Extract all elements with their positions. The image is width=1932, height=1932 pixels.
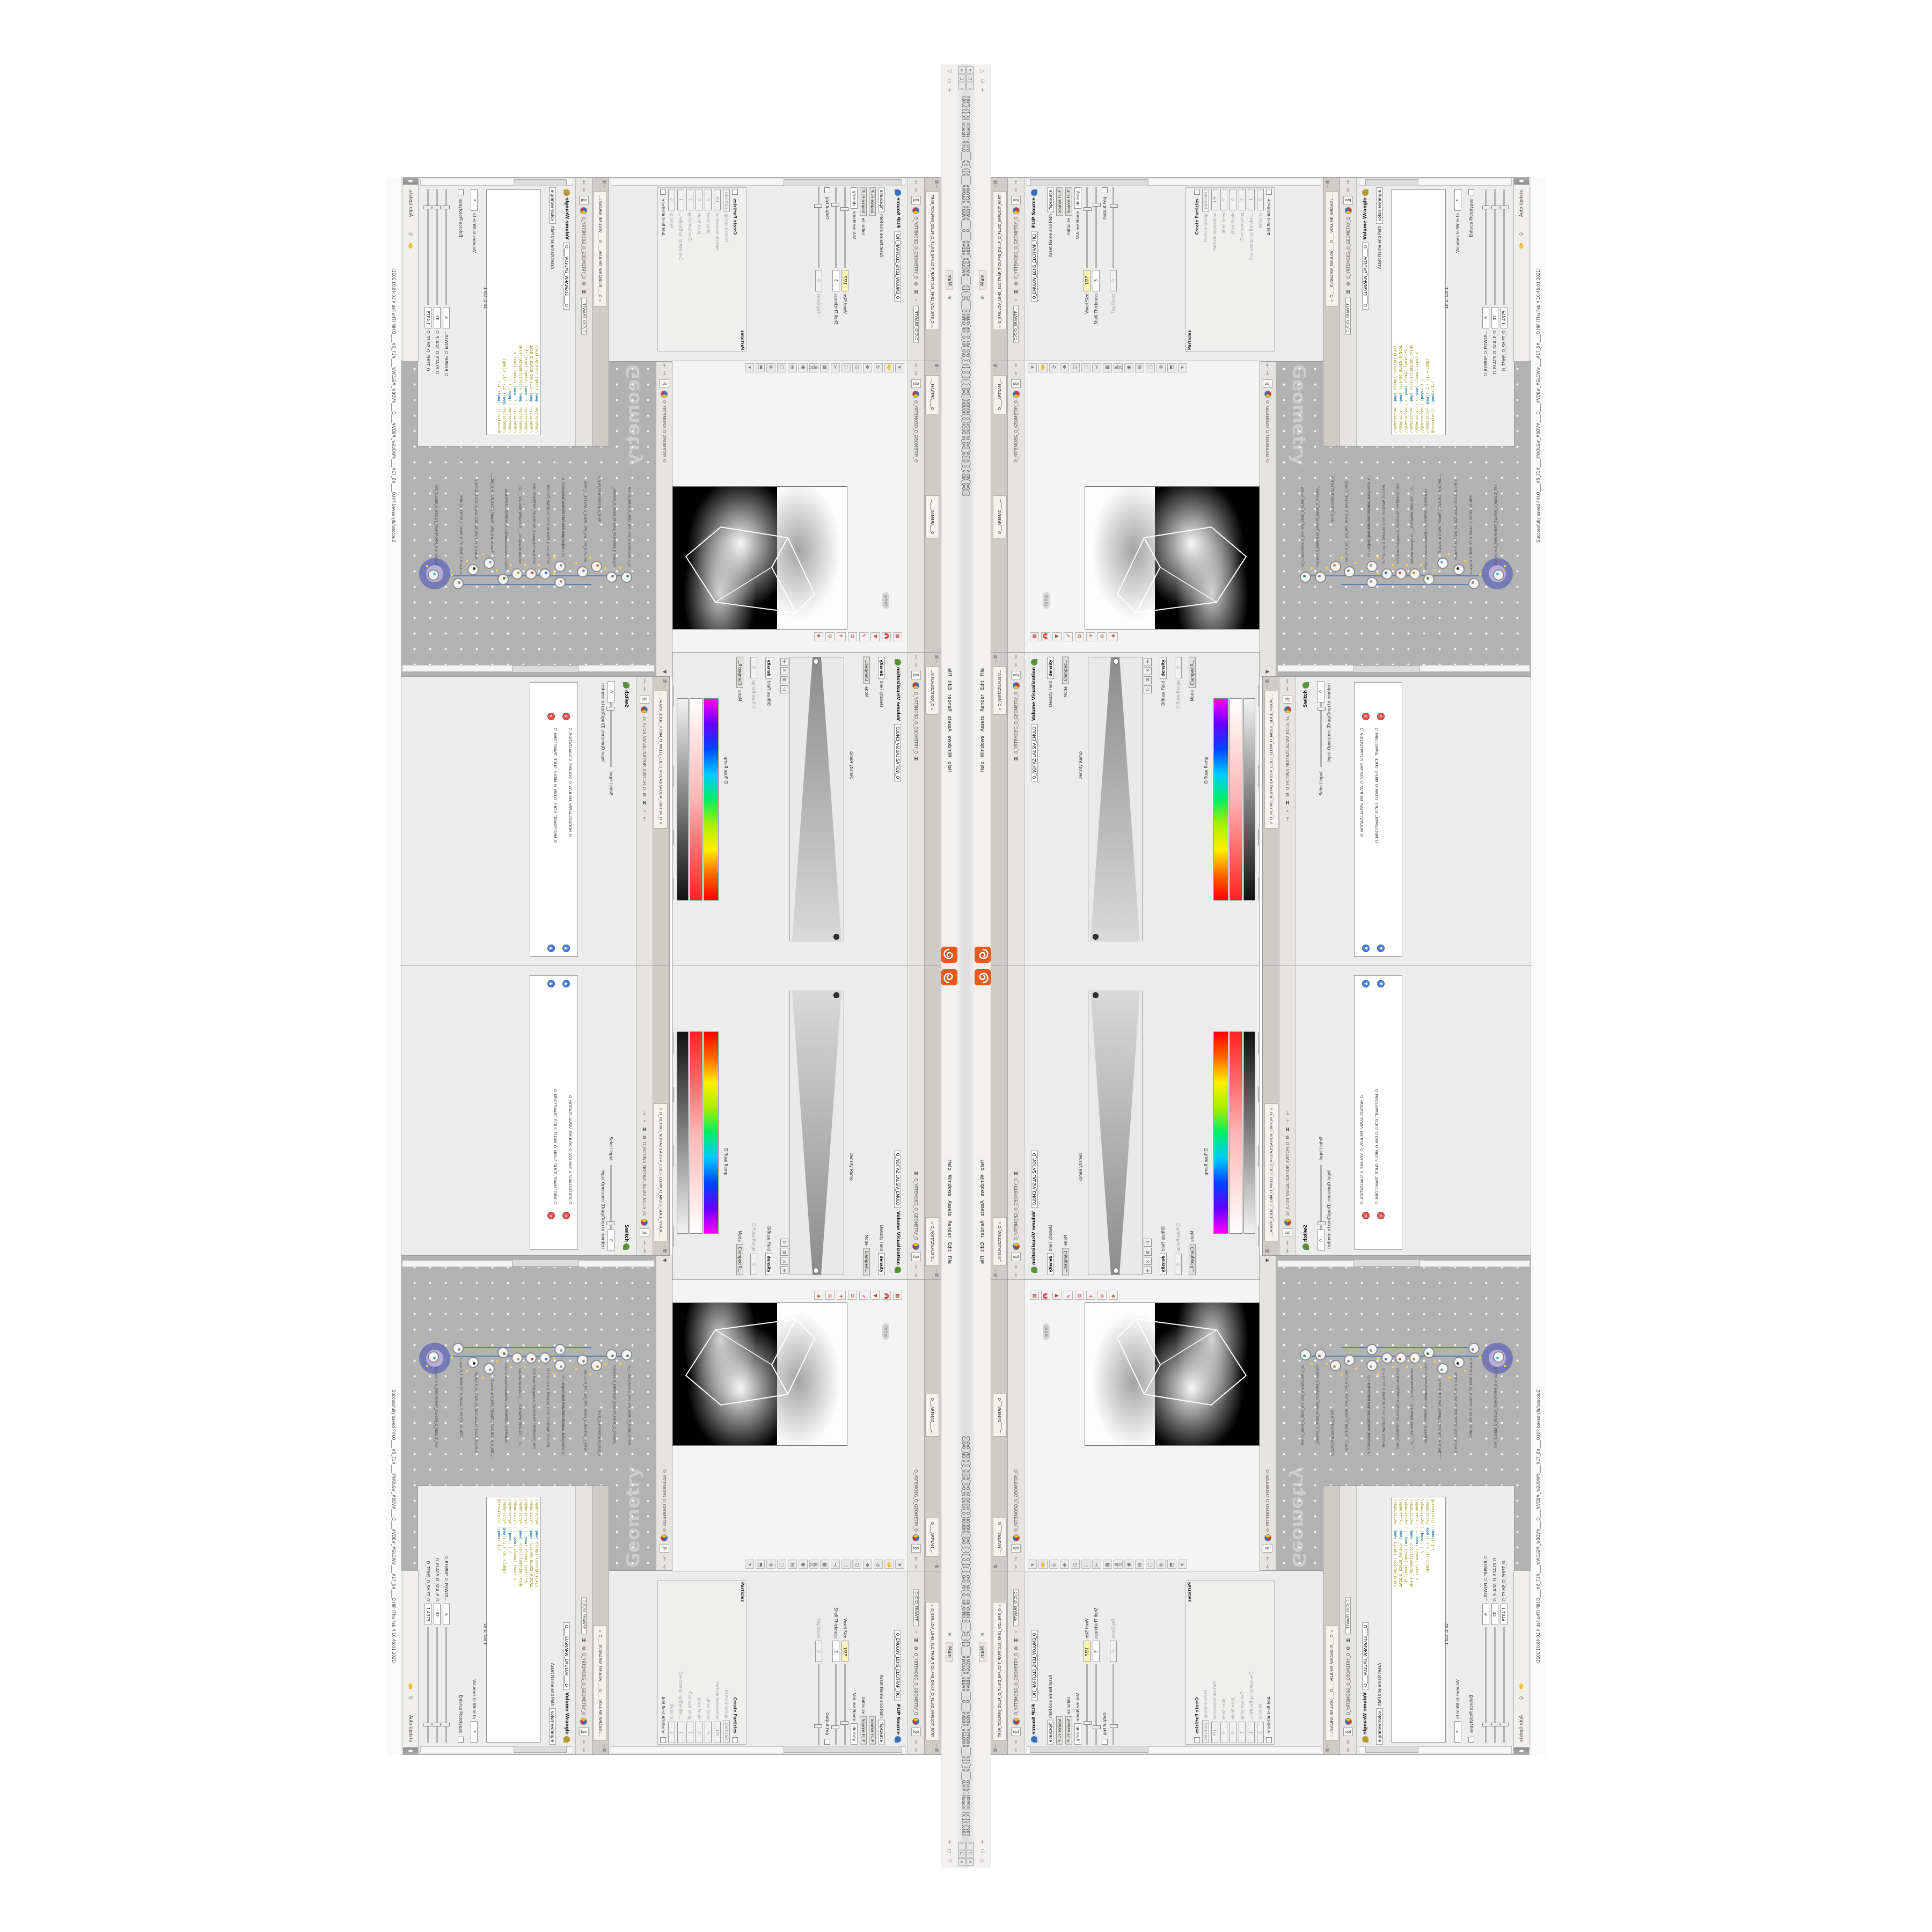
context-chip[interactable]: obj <box>911 379 921 388</box>
toolbar-icon[interactable]: ▶ <box>870 1291 880 1300</box>
down-arrow-icon[interactable]: ⇩ <box>914 1264 918 1269</box>
up-arrow-icon[interactable]: ⇧ <box>914 180 918 185</box>
value-field[interactable]: 1 <box>1248 189 1255 210</box>
close-button[interactable]: x <box>958 1858 965 1865</box>
render-view[interactable] <box>672 486 847 630</box>
toolbar-icon[interactable]: ✜ <box>1157 1560 1166 1569</box>
node-flag[interactable] <box>524 564 526 566</box>
toolbar-icon[interactable]: abc <box>1114 1560 1123 1569</box>
toolbar-icon[interactable]: ✎ <box>1064 632 1073 641</box>
diffuse-range-value[interactable]: 0 <box>1175 1254 1182 1275</box>
node-flag[interactable] <box>1406 564 1408 566</box>
menu-file[interactable]: File <box>941 1254 957 1264</box>
list-item[interactable]: O_NOITAZILAUSIV_EMULOV_O_VOLUME_VISUALIZ… <box>568 728 572 837</box>
ramp-shape-icon[interactable]: △ <box>780 1239 788 1247</box>
list-item[interactable]: O_MROFSNART_ECILS_ELDIM_O_MIDLE_SLICE_TR… <box>1375 728 1379 843</box>
node-flag[interactable] <box>1355 1368 1357 1370</box>
param-shell-thickness[interactable]: 3Shell Thickness <box>1093 1607 1100 1745</box>
up-arrow-icon[interactable]: ⇧ <box>662 1563 667 1569</box>
network-node[interactable] <box>1381 568 1393 580</box>
value-field[interactable]: Source FLIP <box>869 1716 876 1745</box>
slider[interactable] <box>1113 1664 1114 1745</box>
volumes-value[interactable]: * <box>1454 1721 1461 1743</box>
operator-ball-icon[interactable] <box>913 1718 920 1725</box>
saturation-ramp[interactable] <box>690 1031 702 1234</box>
param-enforce-prototypes[interactable]: Enforce Prototypes <box>458 1695 464 1743</box>
viewport-breadcrumb[interactable]: O_YRTEMOEG_O_GEOMETRY_O <box>914 1469 919 1532</box>
slider[interactable] <box>1086 1664 1088 1745</box>
menu-edit[interactable]: Edit <box>941 680 957 691</box>
search-icon[interactable]: ⌕ <box>643 1118 646 1123</box>
viewport-content[interactable]: ➤✋⟲✥◲⬚Y▦abc◉⊞▢✜◧▸ Ortho <box>672 1279 908 1571</box>
houdini-h-icon[interactable]: H <box>582 290 586 295</box>
value-field[interactable]: density <box>851 187 858 209</box>
slider[interactable] <box>835 1664 837 1745</box>
hue-ramp[interactable] <box>704 1031 719 1234</box>
viewport-content[interactable]: ➤✋⟲✥◲⬚Y▦abc◉⊞▢✜◧▸ Ortho <box>1024 361 1260 653</box>
context-chip[interactable]: obj <box>1011 1544 1021 1553</box>
toolbar-icon[interactable]: ▢ <box>777 363 786 372</box>
toolbar-icon[interactable]: ◍ <box>1075 632 1084 641</box>
maximize-button[interactable]: □ <box>967 75 974 82</box>
list-item[interactable]: O_NOITAZILAUSIV_EMULOV_O_VOLUME_VISUALIZ… <box>568 1095 572 1204</box>
h-scrollbar[interactable] <box>1027 1746 1321 1753</box>
toolbar-icon[interactable]: ➤ <box>895 1560 904 1569</box>
pane-tab-icons[interactable]: ▤⋮ <box>1326 179 1330 189</box>
value-field[interactable]: 1/27 <box>841 270 848 291</box>
value-field[interactable]: 6 <box>1482 307 1489 328</box>
viewport-content[interactable]: ➤✋⟲✥◲⬚Y▦abc◉⊞▢✜◧▸ Ortho <box>1024 1279 1260 1571</box>
toolbar-icon[interactable]: ▦ <box>1103 363 1112 372</box>
toolbar-icon[interactable]: ✋ <box>884 363 894 372</box>
pane-tab-icons[interactable]: ▤⋮ <box>993 179 998 189</box>
node-flag[interactable] <box>1464 560 1466 562</box>
ortho-label[interactable]: Ortho <box>882 1323 889 1340</box>
network-node[interactable] <box>606 572 617 583</box>
node-flag[interactable] <box>510 1366 512 1368</box>
operator-ball-icon[interactable] <box>1284 706 1291 713</box>
param-voxel-size[interactable]: 1/27Voxel Size <box>1084 1618 1091 1745</box>
node-flag[interactable] <box>553 557 555 559</box>
volviz-breadcrumb[interactable]: O_YRTEMOEG_O_GEOMETRY_O <box>1014 692 1019 754</box>
auto-update-selector[interactable]: Auto Update <box>408 1715 413 1742</box>
network-node[interactable] <box>467 564 479 575</box>
toolbar-icon[interactable]: ✥ <box>863 1560 872 1569</box>
param-position[interactable]: 0 Position <box>673 765 674 804</box>
add-point-icon[interactable]: ✛ <box>1144 1266 1152 1274</box>
toolbar-icon[interactable]: ⟲ <box>1049 363 1058 372</box>
desktop-grid-icon[interactable]: ⊞ <box>975 1632 991 1637</box>
value-field[interactable]: 0 <box>1230 1722 1236 1743</box>
houdini-h-icon[interactable]: H <box>914 290 918 295</box>
slider[interactable] <box>1086 187 1088 268</box>
network-node[interactable] <box>452 1343 464 1354</box>
volume-wrangle-pane[interactable]: ▤⋮ O____ELGNARW_EMULOV____O____VOLUME_WR… <box>1323 1485 1514 1755</box>
up-arrow-icon[interactable]: ⇧ <box>582 1747 586 1752</box>
toolbar-icon[interactable]: ▦ <box>1103 1560 1112 1569</box>
param-asset-name[interactable]: volumewrangle Asset Name and Path <box>1376 187 1383 269</box>
help-icon[interactable]: ? <box>643 817 646 822</box>
density-field-value[interactable]: density <box>878 657 885 679</box>
tab-close-icon[interactable]: ✕ <box>594 1629 606 1633</box>
gear-icon[interactable]: ⚙ <box>1014 1645 1018 1650</box>
value-field[interactable]: 1.4375 <box>425 307 431 328</box>
up-arrow-icon[interactable]: ⇧ <box>1014 180 1018 185</box>
ramp-handle[interactable] <box>1113 658 1119 664</box>
volume-wrangle-pane[interactable]: ▤⋮ O____ELGNARW_EMULOV____O____VOLUME_WR… <box>1323 177 1514 447</box>
param-volume-name[interactable]: densityVolume Name <box>851 187 858 239</box>
create-particles-checkbox[interactable] <box>732 1737 738 1743</box>
menu-assets[interactable]: Assets <box>975 1199 991 1216</box>
value-field[interactable]: particles <box>723 189 730 211</box>
ramp-handle[interactable] <box>813 658 819 664</box>
saturation-ramp[interactable] <box>1230 1031 1242 1234</box>
toolbar-icon[interactable]: ▸ <box>1178 1560 1187 1569</box>
houdini-h-icon[interactable]: H <box>1014 290 1018 295</box>
hue-ramp[interactable] <box>1213 1031 1228 1234</box>
viewport-breadcrumb[interactable]: O_YRTEMOEG_O_GEOMETRY_O <box>914 400 919 463</box>
toolbar-icon[interactable]: ▸ <box>745 363 754 372</box>
diffuse-range-value[interactable]: 0 <box>750 657 757 678</box>
switch-breadcrumb[interactable]: O_HCTIWS_NOITAZILAUSIV_ECILS_EL <box>642 716 647 790</box>
switch-pane[interactable]: ▤⋮ O_HCTIWS_NOITAZILAUSIV_ECILS_ELDIM_O_… <box>400 676 670 967</box>
menu-assets[interactable]: Assets <box>941 1199 957 1216</box>
ramp-flip-icon[interactable]: ⊟ <box>1144 1248 1152 1256</box>
param-fog-boost[interactable]: 0Fog Boost <box>1110 1619 1117 1745</box>
toolbar-icon[interactable]: ▸ <box>745 1560 754 1569</box>
flip-source-pane[interactable]: ▤⋮ O_EMULOV_LEHS_ELCITRAP_TICILPMI_DIULF… <box>991 177 1324 362</box>
node-flag[interactable] <box>1355 562 1357 564</box>
toolbar-icon[interactable]: ✈ <box>837 632 846 641</box>
context-chip[interactable]: obj <box>911 1544 921 1553</box>
density-field-value[interactable]: density <box>878 1253 885 1275</box>
network-node[interactable] <box>467 1357 479 1368</box>
tab-close-icon[interactable]: ✕ <box>926 325 938 329</box>
volviz-node-name[interactable]: O_NOITAZILAUSIV_EMULO <box>1031 1151 1038 1208</box>
volviz-node-name[interactable]: O_NOITAZILAUSIV_EMULO <box>1031 724 1038 781</box>
enforce-prototypes-checkbox[interactable] <box>1468 189 1474 195</box>
houdini-h-icon[interactable]: H <box>914 1637 918 1642</box>
network-node[interactable] <box>1409 1352 1421 1364</box>
param-volume-name[interactable]: densityVolume Name <box>1074 187 1081 239</box>
density-ramp-widget[interactable] <box>789 657 844 941</box>
toolbar-icon[interactable]: ▢ <box>1146 363 1155 372</box>
flip-source-pane[interactable]: ▤⋮ O_EMULOV_LEHS_ELCITRAP_TICILPMI_DIULF… <box>991 1570 1324 1755</box>
param-diffuse-mode[interactable]: Clamped R... Mode <box>1189 657 1196 701</box>
toolbar-icon[interactable]: ⊕ <box>1097 632 1107 641</box>
ramp-handle[interactable] <box>1093 992 1099 998</box>
directory-field[interactable]: C:/O/O_ERAWTF... <box>1345 1598 1351 1635</box>
tab-switch[interactable]: O_HCTIWS_NOITAZILAUSIV_ECILS_ELDIM_O_MID… <box>1264 1103 1278 1241</box>
param-jitter-seed[interactable]: 0Jitter Seed <box>705 1699 712 1743</box>
node-flag[interactable] <box>1377 573 1379 575</box>
desktop-tab-main[interactable]: Main <box>979 1643 986 1662</box>
param-volumes-to-write[interactable]: * Volumes to Write to <box>1454 1679 1461 1743</box>
network-node[interactable] <box>1300 572 1311 583</box>
up-arrow-icon[interactable]: ⇧ <box>662 363 667 369</box>
network-node[interactable] <box>497 1347 509 1358</box>
menu-windows[interactable]: Windows <box>975 736 991 759</box>
density-field-value[interactable]: density <box>1047 657 1054 679</box>
checkbox[interactable] <box>824 187 830 193</box>
toolbar-icon[interactable]: Y <box>831 1560 840 1569</box>
pane-expand-icon[interactable]: ▷ <box>975 69 991 74</box>
toolbar-icon[interactable]: ⊞ <box>788 1560 797 1569</box>
desktop-grid-icon[interactable]: ⊞ <box>941 1632 957 1637</box>
node-flag[interactable] <box>510 564 512 566</box>
context-chip[interactable]: obj <box>911 1253 921 1261</box>
vw-breadcrumb[interactable]: O_YRTEMOEG_O_GEOMETRY_O <box>582 217 587 279</box>
toolbar-icon[interactable]: ➤ <box>1028 1560 1037 1569</box>
context-chip[interactable]: obj <box>1283 1228 1292 1237</box>
pane-tab-icons[interactable]: ▤⋮ <box>663 678 667 688</box>
menu-assets[interactable]: Assets <box>975 716 991 733</box>
volume-wrangle-pane[interactable]: ▤⋮ O____ELGNARW_EMULOV____O____VOLUME_WR… <box>418 1485 609 1755</box>
toolbar-icon[interactable]: ▢ <box>1146 1560 1155 1569</box>
slider[interactable] <box>844 1664 846 1745</box>
toolbar-icon[interactable]: ◉ <box>799 363 808 372</box>
value-field[interactable]: Source FLIP <box>1065 187 1072 216</box>
switch-breadcrumb[interactable]: O_HCTIWS_NOITAZILAUSIV_ECILS_EL <box>642 1142 647 1216</box>
param-create-particles[interactable]: Create Particles <box>732 189 738 350</box>
ramp-handle[interactable] <box>1093 934 1099 940</box>
close-button[interactable]: x <box>967 1858 974 1865</box>
down-arrow-icon[interactable]: ⇩ <box>1014 663 1018 668</box>
toolbar-icon[interactable]: ◲ <box>852 363 861 372</box>
value-field[interactable]: particles <box>1202 1721 1209 1743</box>
toolbar-icon[interactable]: 🧲 <box>882 632 891 641</box>
diffuse-mode-value[interactable]: Clamped R... <box>1189 657 1196 688</box>
pane-divider-handle[interactable]: ◀▶ <box>1514 1747 1529 1754</box>
tab-volume-visualization[interactable]: O_NOITAZILAUSIV... ✕ <box>925 667 939 715</box>
ramp-handle[interactable] <box>833 992 839 998</box>
tab-close-icon[interactable]: ✕ <box>994 325 1006 329</box>
flip-node-name[interactable]: O_EMULOV_LEHS_ELCITRAP_TICI <box>895 231 902 302</box>
move-icon[interactable]: ✛ <box>941 88 957 93</box>
up-arrow-icon[interactable]: ⇧ <box>914 363 918 369</box>
toolbar-icon[interactable]: ✜ <box>1157 363 1166 372</box>
slider[interactable] <box>844 187 846 268</box>
pane-expand-icon[interactable]: ▷ <box>941 1858 957 1863</box>
node-flag[interactable] <box>1420 1366 1422 1368</box>
network-node[interactable] <box>621 572 632 583</box>
density-ramp-widget[interactable] <box>1088 657 1143 941</box>
checkbox[interactable] <box>824 1739 830 1745</box>
saturation-ramp[interactable] <box>690 698 702 901</box>
remove-item-icon[interactable]: ✕ <box>562 713 570 720</box>
toolbar-icon[interactable]: ✜ <box>766 1560 775 1569</box>
up-arrow-icon[interactable]: ⇧ <box>1346 1747 1350 1752</box>
tab-switch[interactable]: O_HCTIWS_NOITAZILAUSIV_ECILS_ELDIM_O_MID… <box>654 691 668 829</box>
node-flag[interactable] <box>1406 1366 1408 1368</box>
diffuse-field-value[interactable]: density <box>765 657 772 679</box>
value-field[interactable]: 3 <box>1093 270 1100 291</box>
value-field[interactable]: particles <box>723 1721 730 1743</box>
param-jitter-scale[interactable]: 0Jitter Scale <box>696 1698 702 1743</box>
param-output-fog[interactable]: Output Fog <box>1102 1713 1108 1745</box>
toolbar-icon[interactable]: ▸ <box>1178 363 1187 372</box>
help-icon[interactable]: ? <box>1286 817 1289 822</box>
gear-icon[interactable]: ⚙ <box>1285 793 1290 798</box>
param-o_rewop_o_power...[interactable]: 6O_REWOP_O_POWER... <box>443 1555 450 1743</box>
param-jitter-scale[interactable]: 0Jitter Scale <box>696 189 702 234</box>
value-field[interactable]: 0 <box>705 189 712 210</box>
flip-source-pane[interactable]: ▤⋮ O_EMULOV_LEHS_ELCITRAP_TICILPMI_DIULF… <box>608 1570 941 1755</box>
param-particle-separation[interactable]: 1/9Particle Separation <box>1211 1681 1218 1743</box>
add-point-icon[interactable]: ✛ <box>1144 658 1152 666</box>
param-density-mode[interactable]: Clamped... Mode <box>1062 657 1069 697</box>
render-view[interactable] <box>672 1302 847 1446</box>
value-ramp[interactable] <box>677 1031 689 1234</box>
value-field[interactable]: 1.4375 <box>425 1604 431 1625</box>
node-flag[interactable] <box>619 567 621 569</box>
param-density-mode[interactable]: Clamped... Mode <box>1062 1235 1069 1275</box>
switch-breadcrumb[interactable]: O_HCTIWS_NOITAZILAUSIV_ECILS_EL <box>1285 716 1290 790</box>
param-initialize[interactable]: Source FLIPInitialize <box>1065 187 1072 235</box>
search-icon[interactable]: ⌕ <box>914 298 917 303</box>
select-input-value[interactable]: 0 <box>608 681 614 702</box>
value-field[interactable]: 2 <box>686 189 693 210</box>
toolbar-icon[interactable]: ◍ <box>1075 1291 1084 1300</box>
directory-field[interactable]: C:/O/O_ERAWTF... <box>1013 1590 1019 1627</box>
param-volume-name[interactable]: densityVolume Name <box>851 1693 858 1745</box>
reorder-up-icon[interactable]: ◀ <box>1362 945 1370 952</box>
value-field[interactable]: density <box>1074 1723 1081 1745</box>
toolbar-icon[interactable]: ◍ <box>848 632 857 641</box>
reorder-down-icon[interactable]: ◀ <box>547 980 555 987</box>
param-oversampling-bandwi-[interactable]: 1Oversampling Bandwi... <box>677 189 684 260</box>
viewport-breadcrumb[interactable]: O_YRTEMOEG_O_GEOMETRY_O <box>1014 400 1019 463</box>
network-node[interactable] <box>1395 1352 1407 1364</box>
slider[interactable] <box>427 189 429 305</box>
operator-ball-icon[interactable] <box>913 207 920 214</box>
network-breadcrumb[interactable]: O_YRTEMOEG_O_GEOMETRY_O <box>1265 1469 1270 1532</box>
toolbar-icon[interactable]: ⊕ <box>825 632 835 641</box>
down-arrow-icon[interactable]: ⇩ <box>1346 188 1350 193</box>
gear-icon[interactable]: ⚙ <box>642 1134 647 1139</box>
tab-volume-wrangle[interactable]: O____ELGNARW_EMULOV____O____VOLUME_WRANG… <box>593 192 607 306</box>
value-field[interactable]: 1/9 <box>1211 1722 1218 1743</box>
node-flag[interactable] <box>589 557 591 559</box>
param-enforce-prototypes[interactable]: Enforce Prototypes <box>1468 189 1474 237</box>
network-node[interactable] <box>1468 1343 1480 1354</box>
slider[interactable] <box>1113 187 1114 268</box>
network-node[interactable] <box>1453 1357 1465 1368</box>
delete-point-icon[interactable]: ✕ <box>1144 1257 1152 1265</box>
network-node[interactable] <box>1437 1363 1448 1374</box>
param-diffuse-range[interactable]: 0 Diffuse Range <box>1175 657 1182 708</box>
context-chip[interactable]: obj <box>911 671 921 679</box>
pane-tab-icons[interactable]: ▤⋮ <box>1265 678 1269 688</box>
desktop-tab-main[interactable]: Main <box>946 270 953 290</box>
tab-close-icon[interactable]: ✕ <box>994 1603 1006 1607</box>
density-mode-value[interactable]: Clamped... <box>1062 657 1069 684</box>
directory-field[interactable]: C:/O/O_ERAWTF... <box>581 298 587 335</box>
window-title-bar[interactable]: x □ _ C:/O/O_AIDIV_O_VIDIA_O/O_INIDUOH_O… <box>957 966 966 1868</box>
param-o_tfihs_o_shift_o[interactable]: 1.4375O_TFIHS_O_SHIFT_O <box>1501 189 1507 371</box>
tab-mantra[interactable]: O____ARTNAM_... <box>993 1518 1007 1557</box>
value-field[interactable]: flipsource <box>878 1720 885 1745</box>
param-jitter-seed[interactable]: 0Jitter Seed <box>1220 1699 1227 1743</box>
param-o_rewop_o_power...[interactable]: 6O_REWOP_O_POWER... <box>1482 1555 1489 1743</box>
node-flag[interactable] <box>1434 1360 1436 1363</box>
slider[interactable] <box>1503 189 1505 305</box>
network-node[interactable] <box>1344 566 1355 577</box>
render-view[interactable] <box>1085 486 1260 630</box>
houdini-h-icon[interactable]: H <box>582 1637 586 1642</box>
param-particle-group[interactable]: particlesParticle Group <box>1202 1690 1209 1743</box>
network-node[interactable] <box>591 1360 602 1371</box>
reorder-down-icon[interactable]: ◀ <box>547 945 555 952</box>
node-flag[interactable] <box>1341 557 1343 559</box>
param-particle-group[interactable]: particlesParticle Group <box>723 189 730 242</box>
tab-switch[interactable]: O_HCTIWS_NOITAZILAUSIV_ECILS_ELDIM_O_MID… <box>1264 691 1278 829</box>
param-volumes-to-write[interactable]: * Volumes to Write to <box>1454 189 1461 253</box>
operator-ball-icon[interactable] <box>1264 1534 1271 1541</box>
toolbar-icon[interactable]: abc <box>809 363 818 372</box>
toolbar-icon[interactable]: ❖ <box>814 632 823 641</box>
param-hsv[interactable]: 1.8125 H S V <box>1258 1020 1259 1054</box>
param-density-field[interactable]: density Density Field <box>878 1225 885 1275</box>
pin-icon[interactable]: ▶ <box>1266 1257 1270 1263</box>
operator-ball-icon[interactable] <box>1013 1534 1020 1541</box>
menu-help[interactable]: Help <box>941 1158 957 1170</box>
minimize-button[interactable]: _ <box>967 83 974 90</box>
param-o_rewop_o_power...[interactable]: 6O_REWOP_O_POWER... <box>1482 189 1489 377</box>
density-ramp-widget[interactable] <box>789 991 844 1275</box>
up-arrow-icon[interactable]: ⇧ <box>1014 1272 1018 1277</box>
delete-point-icon[interactable]: ✕ <box>1144 667 1152 675</box>
slider[interactable] <box>1095 187 1097 268</box>
color-swatch[interactable] <box>1258 830 1259 845</box>
tab-volume-wrangle[interactable]: O____ELGNARW_EMULOV____O____VOLUME_WRANG… <box>593 1626 607 1740</box>
param-o_elacs_o_scale_o[interactable]: 32O_ELACS_O_SCALE_O <box>1491 189 1498 374</box>
node-flag[interactable] <box>482 1377 484 1379</box>
tab-flip-source[interactable]: O_EMULOV_LEHS_ELCITRAP_TICILPMI_DIULF_O_… <box>993 1602 1007 1740</box>
ramp-handle[interactable] <box>833 934 839 940</box>
color-swatch[interactable] <box>673 1087 674 1102</box>
param-diffuse-range[interactable]: 0 Diffuse Range <box>750 1224 757 1275</box>
pane-tab-icons[interactable]: ▤⋮ <box>993 363 998 372</box>
desktop-grid-icon[interactable]: ⊞ <box>975 295 991 301</box>
directory-field[interactable]: C:/O/O_ERAWTF... <box>1013 306 1019 343</box>
menu-file[interactable]: File <box>941 668 957 678</box>
value-field[interactable]: 32 <box>1491 1604 1498 1625</box>
value-field[interactable]: 0 <box>1110 270 1117 291</box>
param-jitter-scale[interactable]: 0Jitter Scale <box>1230 189 1236 234</box>
param-density-mode[interactable]: Clamped... Mode <box>863 1235 870 1275</box>
hand-icon[interactable]: ✋ <box>403 243 418 249</box>
param-diffuse-mode[interactable]: Clamped R... Mode <box>736 1231 743 1275</box>
value-field[interactable]: 0 <box>1220 1722 1227 1743</box>
node-flag[interactable] <box>1377 1373 1379 1375</box>
pane-tab-icons[interactable]: ▤⋮ <box>934 363 939 372</box>
flip-node-name[interactable]: O_EMULOV_LEHS_ELCITRAP_TICI <box>1031 231 1038 302</box>
switch-pane[interactable]: ▤⋮ O_HCTIWS_NOITAZILAUSIV_ECILS_ELDIM_O_… <box>1262 965 1532 1256</box>
slider[interactable] <box>1485 189 1487 305</box>
diffuse-range-value[interactable]: 0 <box>1175 657 1182 678</box>
auto-update-strip[interactable]: ◀▶ Auto Update ⟳ ✋ <box>1513 177 1529 362</box>
add-point-icon[interactable]: ✛ <box>780 658 788 666</box>
param-diffuse-range[interactable]: 0 Diffuse Range <box>750 657 757 708</box>
houdini-h-icon[interactable]: H <box>914 757 918 762</box>
ramp-shape-icon[interactable]: △ <box>1144 685 1152 693</box>
value-field[interactable]: 2 <box>1239 1722 1246 1743</box>
value-field[interactable]: 6 <box>443 1604 450 1625</box>
point-no-value[interactable]: 1 <box>673 1226 674 1247</box>
network-node[interactable] <box>428 1351 439 1363</box>
param-volume-name[interactable]: densityVolume Name <box>1074 1693 1081 1745</box>
